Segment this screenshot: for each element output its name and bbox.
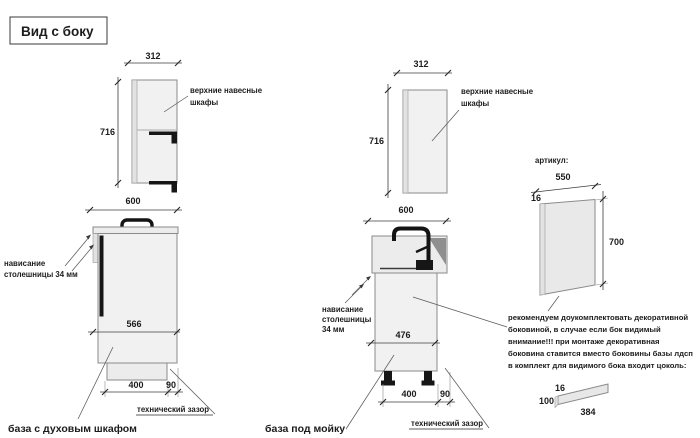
left-upper-cabinet	[132, 80, 177, 193]
door-handle-icon	[149, 181, 177, 193]
note-line-attention: боковина ставится вместо боковины базы л…	[508, 349, 693, 358]
label-line: верхние навесные	[190, 86, 263, 95]
cabinet-side-edge	[132, 80, 137, 183]
dim-panel-thickness: 16	[531, 193, 541, 203]
dim-left-upper-width: 312	[124, 51, 182, 66]
dim-value: 550	[555, 172, 570, 182]
dim-middle-upper-width: 312	[393, 59, 452, 76]
side-view-drawing: Вид с боку 312 716 верхние навесные шкаф…	[0, 0, 700, 438]
left-caption-leader	[78, 347, 113, 419]
label-text: технический зазор	[137, 405, 209, 414]
dim-value: 400	[401, 389, 416, 399]
dim-value: 476	[395, 330, 410, 340]
dim-value: 312	[145, 51, 160, 61]
leader-line	[345, 285, 363, 303]
cabinet-body	[403, 90, 447, 193]
note-line: рекомендуем доукомплектовать декоративно…	[508, 313, 688, 322]
oven-door-strip	[100, 236, 104, 317]
countertop-overhang	[93, 234, 98, 263]
middle-overhang-label: нависание столешницы 34 мм	[322, 276, 372, 334]
left-base-cabinet	[93, 220, 178, 380]
decorative-side-panel	[540, 200, 595, 296]
dim-value: 90	[166, 380, 176, 390]
panel-leader	[548, 296, 559, 311]
dim-value: 716	[100, 127, 115, 137]
panel-edge	[540, 204, 545, 295]
dim-value: 600	[125, 196, 140, 206]
label-text: технический зазор	[411, 419, 483, 428]
plinth-face	[558, 384, 608, 405]
dim-panel-width: 550	[531, 172, 601, 195]
note-block: рекомендуем доукомплектовать декоративно…	[508, 313, 693, 370]
note-line: боковиной, в случае если бок видимый	[508, 325, 661, 334]
cabinet-body	[375, 273, 437, 371]
middle-base-cabinet	[372, 229, 447, 386]
plinth	[107, 363, 167, 380]
faucet-base	[416, 260, 433, 270]
adjustable-leg-icon	[381, 371, 395, 386]
dim-left-base-width: 600	[85, 196, 182, 213]
leader-line	[72, 246, 93, 271]
countertop	[93, 227, 178, 234]
dim-plinth-length: 384	[580, 407, 595, 417]
note-line-attention: внимание!!! при монтаже декоративная	[508, 337, 660, 346]
left-caption: база с духовым шкафом	[8, 423, 137, 435]
label-line: 34 мм	[322, 325, 345, 334]
cabinet-side-edge	[403, 90, 408, 193]
page-title: Вид с боку	[21, 24, 94, 39]
cabinet-body	[98, 234, 177, 364]
dim-value: 700	[609, 237, 624, 247]
dim-middle-base-width: 600	[363, 205, 451, 224]
middle-caption: база под мойку	[265, 423, 345, 435]
label-line: столешницы 34 мм	[4, 270, 78, 279]
note-line: в комплект для видимого бока входит цоко…	[508, 361, 686, 370]
dim-plinth-height: 100	[539, 396, 554, 406]
dim-value: 312	[413, 59, 428, 69]
label-line: шкафы	[190, 98, 219, 107]
left-overhang-label: нависание столешницы 34 мм	[4, 235, 94, 280]
dim-value: 716	[369, 136, 384, 146]
article-label: артикул:	[535, 156, 568, 165]
label-line: верхние навесные	[461, 87, 534, 96]
dim-middle-upper-height: 716	[369, 84, 391, 198]
adjustable-leg-icon	[422, 371, 435, 386]
label-line: нависание	[4, 259, 46, 268]
plinth-board: 16 100 384	[539, 383, 608, 417]
middle-upper-cabinet	[403, 90, 447, 193]
dim-value: 600	[398, 205, 413, 215]
label-line: нависание	[322, 305, 364, 314]
dim-panel-height: 700	[596, 191, 624, 290]
dim-value: 566	[126, 319, 141, 329]
dim-value: 90	[440, 389, 450, 399]
arrowhead-icon	[86, 235, 91, 240]
dim-plinth-thickness: 16	[555, 383, 565, 393]
plinth-edge	[555, 396, 558, 408]
leader-line	[65, 236, 90, 266]
label-line: столешницы	[322, 315, 372, 324]
left-upper-label: верхние навесные шкафы	[164, 86, 263, 112]
middle-caption-leader	[346, 355, 394, 429]
dim-left-upper-height: 716	[100, 77, 121, 188]
dim-value: 400	[128, 380, 143, 390]
label-line: шкафы	[461, 99, 490, 108]
title-box: Вид с боку	[10, 17, 107, 44]
panel-face	[540, 200, 595, 296]
drawing-canvas: Вид с боку 312 716 верхние навесные шкаф…	[0, 0, 700, 438]
